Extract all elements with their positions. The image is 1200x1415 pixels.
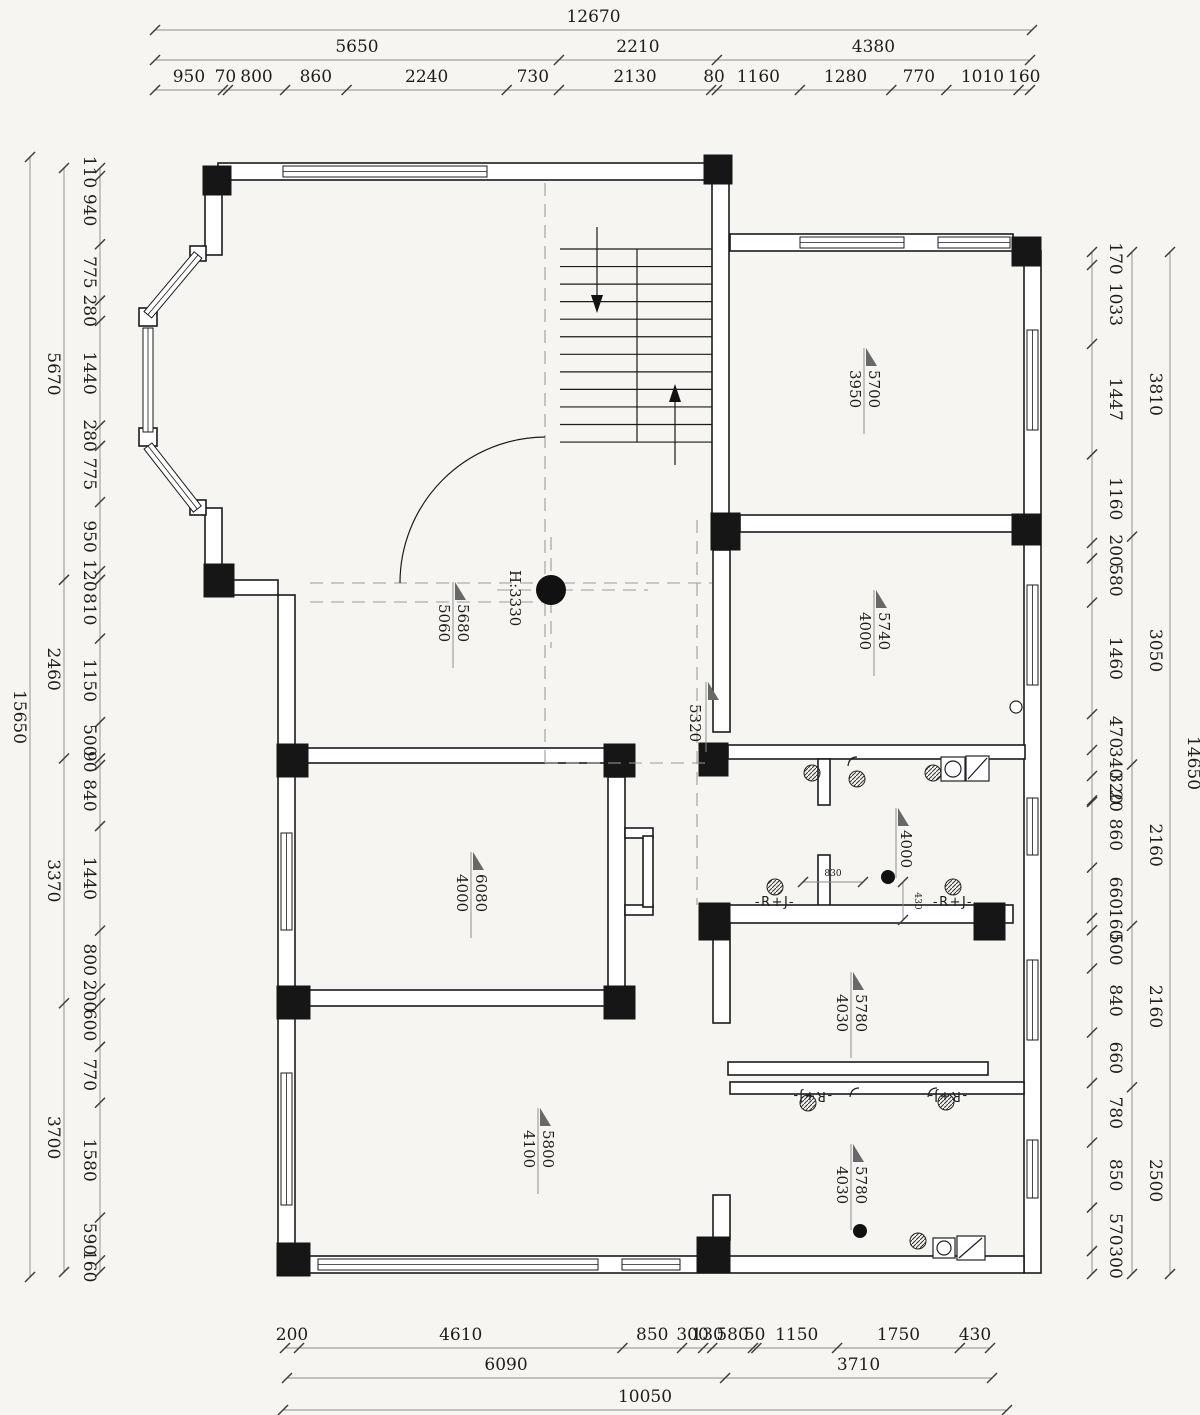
room-elevation: 4000 bbox=[856, 612, 874, 650]
bath-label: 4000 bbox=[896, 808, 915, 878]
spot-elevation-icon bbox=[536, 575, 566, 605]
dim-label: 2460 bbox=[43, 648, 63, 691]
dim-label: 850 bbox=[1105, 1159, 1125, 1191]
room-elevation: 4030 bbox=[833, 994, 851, 1032]
dim-label: 120 bbox=[79, 559, 99, 591]
dim-label: 3370 bbox=[43, 859, 63, 902]
floor-drain-icon-part bbox=[767, 879, 783, 895]
rj-marker: -R+J- bbox=[933, 895, 973, 910]
stairs bbox=[560, 227, 712, 465]
dim-label: 4380 bbox=[852, 37, 895, 57]
room-label-hall: 5680 5060 bbox=[435, 582, 472, 668]
walls-part bbox=[205, 193, 222, 255]
room-label-right-2: 5780 4030 bbox=[833, 1144, 870, 1230]
dim-label: 860 bbox=[300, 67, 332, 87]
dimension-lines: 1267056502210438095070800860224073021308… bbox=[9, 7, 1200, 1415]
dim-label: 1150 bbox=[79, 659, 99, 702]
walls-part bbox=[295, 748, 607, 763]
dim-label: 1750 bbox=[877, 1325, 920, 1345]
room-label-mid-left: 6080 4000 bbox=[453, 852, 490, 938]
room-label-mid-left-part bbox=[473, 852, 484, 870]
dim-label: 1447 bbox=[1105, 378, 1125, 421]
dim-label: 950 bbox=[173, 67, 205, 87]
dim-label: 15650 bbox=[9, 690, 29, 744]
dim-label: 800 bbox=[240, 67, 272, 87]
walls-part bbox=[818, 855, 830, 907]
walls-part bbox=[712, 183, 729, 515]
room-elevation: 5780 bbox=[852, 994, 870, 1032]
dim-label: 860 bbox=[1105, 819, 1125, 851]
room-labels: 5700 3950 5740 4000 5680 5060 H:3330 532… bbox=[435, 348, 973, 1230]
up-arrow-icon bbox=[669, 384, 681, 402]
dim-label: 1440 bbox=[79, 857, 99, 900]
dim-label: 3700 bbox=[43, 1116, 63, 1159]
dim-label: 200 bbox=[276, 1325, 308, 1345]
dim-label: 160 bbox=[1008, 67, 1040, 87]
room-elevation: 5740 bbox=[875, 612, 893, 650]
walls-part bbox=[643, 836, 653, 907]
dim-label: 830 bbox=[824, 869, 841, 879]
columns-part bbox=[974, 903, 1005, 940]
sink-icon-part bbox=[937, 1241, 951, 1255]
shower-icon bbox=[957, 756, 989, 1260]
room-elevation: 5800 bbox=[539, 1130, 557, 1168]
columns-part bbox=[203, 166, 231, 195]
room-elevation: 4000 bbox=[453, 874, 471, 912]
dim-label: 840 bbox=[79, 779, 99, 811]
dim-label: 570 bbox=[1105, 1213, 1125, 1245]
room-elevation: 4000 bbox=[897, 830, 915, 868]
dim-label: 80 bbox=[703, 67, 725, 87]
dim-label: 200 bbox=[79, 980, 99, 1012]
drain-icon bbox=[853, 1224, 867, 1238]
dim-label: 775 bbox=[79, 458, 99, 490]
dim-label: 3810 bbox=[1145, 373, 1165, 416]
room-elevation: 3950 bbox=[846, 370, 864, 408]
room-elevation: 4030 bbox=[833, 1166, 851, 1204]
walls-part bbox=[713, 550, 730, 732]
dim-label: 170 bbox=[1105, 242, 1125, 274]
dim-label: 280 bbox=[79, 419, 99, 451]
dim-label: 850 bbox=[636, 1325, 668, 1345]
dim-label: 2160 bbox=[1145, 824, 1165, 867]
room-elevation: 5320 bbox=[686, 704, 704, 742]
columns-part bbox=[604, 986, 635, 1019]
dim-label: 50 bbox=[744, 1325, 766, 1345]
dim-label: 2210 bbox=[616, 37, 659, 57]
floor-plan-page: 5700 3950 5740 4000 5680 5060 H:3330 532… bbox=[0, 0, 1200, 1415]
room-label-bottom-left-part bbox=[540, 1108, 551, 1126]
room-elevation: 5060 bbox=[435, 604, 453, 642]
columns-part bbox=[277, 1243, 310, 1276]
walls-part bbox=[205, 508, 222, 566]
room-elevation: 5680 bbox=[454, 604, 472, 642]
sink-icon-part bbox=[945, 761, 961, 777]
room-elevation: 6080 bbox=[472, 874, 490, 912]
dim-label: 1160 bbox=[737, 67, 780, 87]
floor-drain-icon-part bbox=[945, 879, 961, 895]
columns bbox=[203, 155, 1041, 1276]
door-arc bbox=[400, 437, 545, 583]
columns-part bbox=[704, 155, 732, 184]
down-arrow-icon bbox=[591, 295, 603, 313]
dim-label: 3710 bbox=[837, 1355, 880, 1375]
room-label-right-1: 5780 4030 bbox=[833, 972, 870, 1058]
dim-label: 780 bbox=[1105, 1097, 1125, 1129]
dim-label: 5670 bbox=[43, 352, 63, 395]
floor-drain-icon-part bbox=[849, 771, 865, 787]
floor-drain-icon-part bbox=[910, 1233, 926, 1249]
windows-part-part bbox=[148, 255, 198, 315]
room-label-top-right: 5700 3950 bbox=[846, 348, 883, 434]
dim-label: 430 bbox=[959, 1325, 991, 1345]
floor-drain-icon-part bbox=[925, 765, 941, 781]
walls-part bbox=[232, 580, 278, 595]
dashed-lines bbox=[310, 183, 712, 905]
room-label-right-2-part bbox=[853, 1144, 864, 1162]
room-elevation: 5780 bbox=[852, 1166, 870, 1204]
dim-label: 500 bbox=[1105, 933, 1125, 965]
dim-label: 1280 bbox=[824, 67, 867, 87]
dim-label: 5650 bbox=[335, 37, 378, 57]
dim-label: 20 bbox=[1105, 790, 1125, 812]
windows-part bbox=[144, 252, 202, 318]
dim-label: 160 bbox=[79, 1250, 99, 1282]
dim-label: 4610 bbox=[439, 1325, 482, 1345]
faucet-icon bbox=[848, 757, 937, 1097]
columns-part bbox=[699, 903, 730, 940]
dim-label: 1033 bbox=[1105, 283, 1125, 326]
dim-label: 1160 bbox=[1105, 477, 1125, 520]
rj-marker: -R+J- bbox=[792, 1088, 832, 1103]
dim-label: 2130 bbox=[613, 67, 656, 87]
walls bbox=[139, 163, 1041, 1273]
walls-part bbox=[818, 759, 830, 805]
columns-part bbox=[711, 513, 740, 550]
dim-label: 775 bbox=[79, 256, 99, 288]
dim-label: 3050 bbox=[1145, 629, 1165, 672]
floor-drain-icon-part bbox=[804, 765, 820, 781]
dim-label: 810 bbox=[79, 593, 99, 625]
dim-label: 2160 bbox=[1145, 985, 1165, 1028]
dim-label: 12670 bbox=[566, 7, 620, 27]
walls-part bbox=[740, 515, 1013, 532]
room-elevation: 5700 bbox=[865, 370, 883, 408]
windows-part-part bbox=[148, 446, 197, 509]
walls-part bbox=[608, 777, 625, 987]
dim-label: 110 bbox=[79, 156, 99, 188]
dim-label: 200 bbox=[1105, 534, 1125, 566]
dim-label: 1580 bbox=[79, 1139, 99, 1182]
dim-label: 1010 bbox=[961, 67, 1004, 87]
dim-label: 1440 bbox=[79, 352, 99, 395]
dim-label: 430 bbox=[912, 892, 922, 909]
room-label-hall-part bbox=[455, 582, 466, 600]
dim-label: 14650 bbox=[1183, 736, 1200, 790]
sink-icon bbox=[933, 757, 965, 1258]
dim-label: 940 bbox=[79, 194, 99, 226]
bath-label-part bbox=[898, 808, 909, 826]
drain-icon bbox=[881, 870, 895, 884]
columns-part bbox=[277, 744, 308, 777]
room-label-right-1-part bbox=[853, 972, 864, 990]
walls-part bbox=[730, 1082, 1024, 1094]
dim-label: 770 bbox=[79, 1059, 99, 1091]
rj-marker: -R+J- bbox=[755, 895, 795, 910]
room-label-mid-right-part bbox=[876, 590, 887, 608]
room-elevation: 4100 bbox=[520, 1130, 538, 1168]
dim-label: 2240 bbox=[405, 67, 448, 87]
room-label-bottom-left: 5800 4100 bbox=[520, 1108, 557, 1194]
dim-label: 1150 bbox=[775, 1325, 818, 1345]
dim-label: 10050 bbox=[618, 1387, 672, 1407]
dim-label: 1460 bbox=[1105, 637, 1125, 680]
room-label-mid-right: 5740 4000 bbox=[856, 590, 893, 676]
dim-label: 300 bbox=[1105, 1246, 1125, 1278]
columns-part bbox=[1012, 237, 1041, 266]
windows-part bbox=[144, 443, 201, 512]
columns-part bbox=[697, 1237, 730, 1273]
rj-marker: -R+J- bbox=[927, 1088, 967, 1103]
dim-label: 2500 bbox=[1145, 1159, 1165, 1202]
columns-part bbox=[699, 743, 728, 776]
dim-label: 660 bbox=[1105, 877, 1125, 909]
dim-label: 840 bbox=[1105, 984, 1125, 1016]
height-value: H:3330 bbox=[506, 570, 524, 626]
dim-label: 660 bbox=[1105, 1042, 1125, 1074]
columns-part bbox=[277, 986, 310, 1019]
room-label-top-right-part bbox=[866, 348, 877, 366]
columns-part bbox=[1012, 514, 1041, 545]
small-circle-icon bbox=[1010, 701, 1022, 713]
walls-part bbox=[713, 1195, 730, 1240]
walls-part bbox=[308, 990, 608, 1006]
dim-label: 90 bbox=[79, 751, 99, 773]
dim-label: 280 bbox=[79, 294, 99, 326]
dim-label: 800 bbox=[79, 943, 99, 975]
dim-label: 470 bbox=[1105, 716, 1125, 748]
ceiling-height-label: H:3330 bbox=[506, 570, 524, 626]
dim-label: 770 bbox=[903, 67, 935, 87]
dim-label: 6090 bbox=[484, 1355, 527, 1375]
dim-label: 730 bbox=[517, 67, 549, 87]
columns-part bbox=[604, 744, 635, 777]
floor-plan-svg: 5700 3950 5740 4000 5680 5060 H:3330 532… bbox=[0, 0, 1200, 1415]
walls-part bbox=[728, 1062, 988, 1075]
dim-label: 600 bbox=[79, 1009, 99, 1041]
dim-label: 950 bbox=[79, 520, 99, 552]
dim-label: 580 bbox=[1105, 564, 1125, 596]
columns-part bbox=[204, 564, 234, 597]
dim-label: 70 bbox=[215, 67, 237, 87]
